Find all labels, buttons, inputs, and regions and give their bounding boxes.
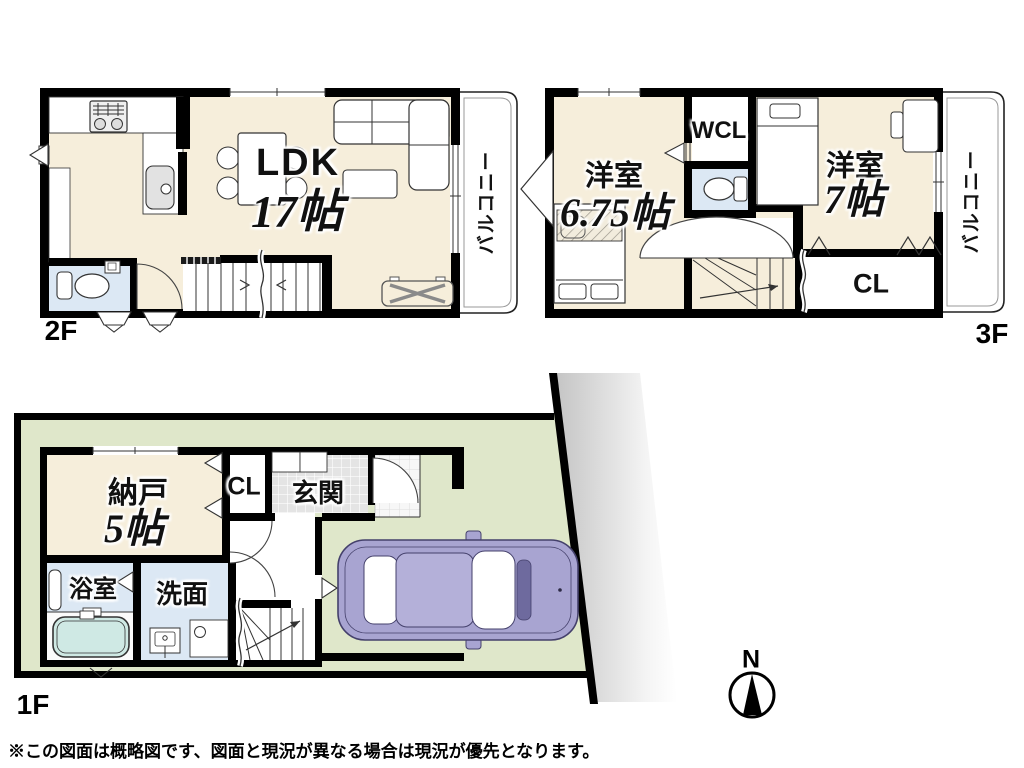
disclaimer-text: ※この図面は概略図です、図面と現況が異なる場合は現況が優先となります。 xyxy=(8,737,599,762)
room-label-wcl: WCL xyxy=(692,119,747,143)
room-label-bathroom: 浴室 xyxy=(69,578,117,602)
room-label-ldk: LDK xyxy=(256,144,340,182)
room-label-west1: 洋室 xyxy=(585,163,643,192)
bay-window-icon xyxy=(30,144,49,166)
room-label-cl-3f: CL xyxy=(853,271,889,298)
north-compass-icon xyxy=(730,673,774,717)
room-label-entrance: 玄関 xyxy=(292,480,344,506)
floorplan-page: LDK 17帖 バルコニー 2F 洋室 6.75帖 洋室 7帖 WCL CL バ… xyxy=(0,0,1024,768)
room-size-storage: 5帖 xyxy=(104,509,164,549)
stairs-2f xyxy=(181,250,332,318)
shoe-cabinet xyxy=(272,452,327,472)
floorplan-graphics xyxy=(0,0,1024,768)
room-size-west2: 7帖 xyxy=(824,180,884,220)
bath-door xyxy=(49,570,61,610)
room-label-cl-1f: CL xyxy=(227,475,260,500)
toilet-icon xyxy=(704,177,747,201)
washer-pan-icon xyxy=(190,620,228,657)
bed-icon xyxy=(757,98,818,205)
room-size-west1: 6.75帖 xyxy=(560,193,670,233)
stove-icon xyxy=(90,101,127,132)
window xyxy=(93,446,178,455)
room-size-ldk: 17帖 xyxy=(251,189,343,235)
bathtub-icon xyxy=(53,611,129,657)
room-label-washroom: 洗面 xyxy=(156,581,208,607)
floor-label-3f: 3F xyxy=(976,318,1009,350)
bay-window-icon xyxy=(521,151,553,226)
compass-north-label: N xyxy=(742,646,760,675)
low-table-icon xyxy=(382,277,453,306)
balcony-label-3f: バルコニー xyxy=(963,149,982,254)
floor-label-1f: 1F xyxy=(17,689,50,721)
car-icon xyxy=(338,531,578,649)
balcony-label-2f: バルコニー xyxy=(478,150,497,255)
floor-label-2f: 2F xyxy=(45,315,78,347)
room-label-storage: 納戸 xyxy=(108,479,168,509)
washbasin-icon xyxy=(150,628,180,658)
sink-icon xyxy=(146,166,174,209)
